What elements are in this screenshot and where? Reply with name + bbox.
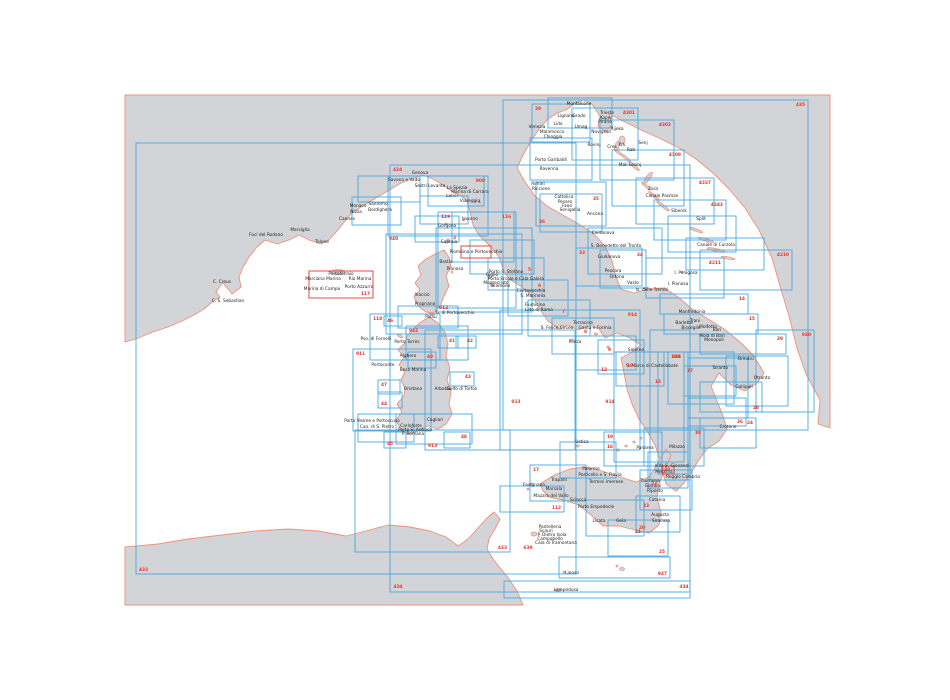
place-label: Golfo di Tortoli — [447, 386, 478, 392]
chart-number-25: 25 — [659, 549, 665, 555]
chart-number-10: 10 — [627, 363, 633, 369]
place-label: Portoconte — [371, 362, 395, 368]
chart-number-34: 34 — [637, 252, 643, 258]
place-label: Porto Empedocle — [578, 504, 615, 510]
island-blob — [619, 568, 624, 571]
chart-number-33: 33 — [579, 250, 585, 256]
chart-number-913: 913 — [511, 399, 520, 405]
chart-number-16: 16 — [607, 444, 613, 450]
place-label: Sanremo — [368, 201, 388, 207]
place-label: Chioggia — [544, 134, 563, 140]
place-label: Favignana — [523, 482, 545, 488]
place-label: Palermo — [582, 466, 600, 472]
place-label: Aiaccio — [414, 292, 430, 298]
chart-number-13: 13 — [655, 379, 661, 385]
place-label: Porto Ercole e Cala Galera — [488, 276, 544, 282]
place-label: Marsala — [546, 486, 563, 492]
place-label: Licata — [593, 518, 606, 524]
place-label: Mazara del Vallo — [533, 493, 569, 499]
chart-number-47: 47 — [381, 382, 387, 388]
place-label: Manfredonia — [679, 309, 706, 315]
place-label: Porto S. Stefano — [489, 269, 524, 275]
island-blob — [625, 445, 627, 447]
place-label: Monaco — [350, 203, 367, 209]
place-label: Lido di Roma — [525, 307, 553, 313]
chart-number-914: 914 — [605, 399, 614, 405]
place-label: Salerno — [628, 347, 645, 353]
place-label: Porto Garibaldi — [535, 157, 567, 163]
chart-number-4308: 4308 — [669, 152, 681, 158]
chart-number-139: 139 — [671, 354, 680, 360]
chart-number-28: 28 — [753, 405, 759, 411]
place-label: Rio Marina — [349, 276, 372, 282]
place-label: Trani — [689, 318, 700, 324]
place-label: Panarea — [636, 445, 654, 451]
place-label: Genova — [412, 170, 429, 176]
place-label: Ravenna — [540, 166, 559, 172]
chart-number-48: 48 — [461, 434, 467, 440]
place-label: Bastia — [439, 259, 453, 265]
chart-number-117: 117 — [361, 291, 370, 297]
chart-number-26: 26 — [737, 419, 743, 425]
chart-number-45: 45 — [387, 441, 393, 447]
chart-number-4301: 4301 — [623, 110, 635, 116]
place-label: P. Romana — [402, 431, 425, 437]
place-label: Propriano — [415, 301, 436, 307]
chart-number-912: 912 — [439, 305, 448, 311]
chart-number-913: 913 — [428, 443, 437, 449]
place-label: Giulianova — [598, 254, 621, 260]
chart-number-9: 9 — [608, 347, 611, 353]
place-label: Crotone — [720, 424, 737, 430]
chart-number-39: 39 — [535, 106, 541, 112]
chart-number-4211: 4211 — [709, 260, 721, 266]
place-label: Rovinj — [587, 142, 600, 148]
chart-number-18: 18 — [695, 430, 701, 436]
place-label: Porticello e S. Flavia — [578, 472, 622, 478]
chart-number-1: 1 — [478, 199, 481, 205]
place-label: Sestri Levante — [415, 183, 446, 189]
chart-number-46: 46 — [387, 318, 393, 324]
place-label: S. Felice Circeo — [541, 325, 574, 331]
place-label: Catania — [649, 497, 666, 503]
place-label: Monopoli — [704, 337, 723, 343]
chart-number-432: 432 — [139, 567, 148, 573]
place-label: Pescara — [605, 268, 622, 274]
island-blob — [633, 441, 635, 443]
place-label: Otranto — [754, 375, 771, 381]
chart-number-138: 138 — [661, 467, 670, 473]
place-label: Gela — [616, 518, 626, 524]
place-label: C. S. Sebastian — [212, 298, 245, 304]
place-label: Cannes — [339, 216, 356, 222]
place-label: Pianosa — [447, 266, 464, 272]
chart-number-908: 908 — [476, 178, 485, 184]
chart-number-29: 29 — [777, 336, 783, 342]
chart-index-map: C. CreusC. S. SebastianMarsigliaFoci del… — [0, 0, 950, 700]
chart-number-434: 434 — [679, 584, 688, 590]
place-label: Lido — [554, 121, 563, 127]
chart-number-3: 3 — [453, 235, 456, 241]
place-label: Gallipoli — [735, 384, 752, 390]
chart-number-914: 914 — [628, 312, 637, 318]
chart-number-116: 116 — [502, 214, 511, 220]
chart-number-112: 112 — [552, 505, 561, 511]
place-label: Cagliari — [427, 417, 443, 423]
place-label: Grado — [572, 113, 585, 119]
chart-number-12: 12 — [601, 367, 607, 373]
place-label: Trapani — [550, 477, 567, 483]
chart-number-5: 5 — [528, 267, 531, 273]
place-label: Augusta — [651, 512, 669, 518]
chart-number-27: 27 — [687, 368, 693, 374]
chart-number-35: 35 — [593, 196, 599, 202]
chart-number-434: 434 — [393, 584, 402, 590]
place-label: Porto Torres — [394, 339, 420, 345]
chart-number-41: 41 — [449, 338, 455, 344]
place-label: Piombino e Portovecchio — [450, 249, 503, 255]
place-label: Taranto — [711, 365, 728, 371]
chart-number-920: 920 — [802, 332, 811, 338]
chart-number-118: 118 — [373, 316, 382, 322]
place-label: Cres — [607, 144, 617, 150]
place-label: Sibenik — [671, 208, 687, 214]
place-label: Gorgona — [438, 223, 457, 229]
place-label: Ancona — [587, 211, 603, 217]
place-label: Porto Vesme e Portoscuso — [344, 418, 400, 424]
place-label: Reggio Calabria — [666, 474, 700, 480]
chart-number-434: 434 — [393, 167, 402, 173]
chart-number-433: 433 — [498, 545, 507, 551]
place-label: Mali Losinj — [619, 162, 641, 168]
place-label: Bordighera — [368, 207, 392, 213]
place-label: Nizza — [350, 209, 362, 215]
place-label: Marsiglia — [290, 227, 310, 233]
place-label: Cala di Tramontana — [535, 540, 577, 546]
mediterranean-chart-index-svg: C. CreusC. S. SebastianMarsigliaFoci del… — [0, 0, 950, 700]
chart-number-942: 942 — [409, 328, 418, 334]
place-label: Is. delle Tremiti — [636, 287, 669, 293]
place-label: Oristano — [404, 386, 423, 392]
chart-number-24: 24 — [747, 420, 753, 426]
place-label: Bari — [713, 327, 722, 333]
place-label: Brindisi — [738, 356, 754, 362]
place-label: Pso. di Fornelli — [361, 336, 392, 342]
place-label: Rab — [627, 147, 636, 153]
place-label: Milazzo — [669, 444, 685, 450]
island-blob — [531, 532, 537, 536]
chart-number-43: 43 — [465, 374, 471, 380]
place-label: I. Pelagosa — [674, 270, 698, 276]
place-label: Siracusa — [652, 518, 671, 524]
place-label: Canale di Curzola — [697, 242, 735, 248]
place-label: Savona e Vado — [388, 177, 420, 183]
place-label: S. Marco di Castellabate — [626, 363, 678, 369]
place-label: S. Marinella — [520, 293, 546, 299]
place-label: Riccione — [532, 186, 550, 192]
chart-number-4302: 4302 — [659, 122, 671, 128]
place-label: Umag — [575, 124, 588, 130]
place-label: Krk — [618, 142, 626, 148]
place-label: Ustica — [575, 439, 589, 445]
chart-number-14: 14 — [739, 296, 745, 302]
chart-number-2: 2 — [462, 217, 465, 223]
place-label: S. Benedetto del Tronto — [591, 243, 642, 249]
chart-number-36: 36 — [539, 219, 545, 225]
chart-number-8: 8 — [584, 329, 587, 335]
island-blob — [527, 488, 529, 490]
chart-number-435: 435 — [796, 102, 805, 108]
chart-number-6: 6 — [538, 283, 541, 289]
place-label: Sciacca — [570, 497, 587, 503]
island-blob — [577, 445, 580, 447]
place-label: Marina di Campo — [304, 286, 341, 292]
place-label: Palau — [425, 314, 437, 320]
chart-number-15: 15 — [749, 316, 755, 322]
place-label: Villa S. Giovanni — [655, 463, 690, 469]
chart-number-44: 44 — [381, 401, 387, 407]
place-label: Lampedusa — [554, 587, 579, 593]
island-blob — [594, 333, 597, 335]
chart-number-19: 19 — [607, 434, 613, 440]
chart-number-17: 17 — [533, 467, 539, 473]
place-label: Talamone — [489, 283, 511, 289]
chart-number-22: 22 — [651, 481, 657, 487]
chart-number-21: 21 — [635, 529, 641, 535]
place-label: I. Pianosa — [668, 281, 689, 287]
place-label: Rijeka — [610, 126, 623, 132]
place-label: Marina di Carrara — [451, 189, 489, 195]
place-label: Bosa Marina — [400, 367, 427, 373]
chart-number-940: 940 — [389, 236, 398, 242]
place-label: Termini Imerese — [588, 479, 624, 485]
place-label: C. Creus — [213, 279, 232, 285]
chart-number-4343: 4343 — [711, 202, 723, 208]
place-label: Split — [696, 216, 706, 222]
chart-number-7: 7 — [562, 309, 565, 315]
place-label: Vasto — [627, 280, 639, 286]
chart-number-639: 639 — [523, 545, 532, 551]
chart-number-23: 23 — [643, 503, 649, 509]
place-label: Pirano — [598, 119, 612, 125]
place-label: Foci del Rodano — [249, 232, 283, 238]
place-label: Tolone — [314, 239, 329, 245]
place-label: Linosa — [565, 570, 579, 576]
chart-number-40: 40 — [427, 354, 433, 360]
island-blob — [616, 565, 618, 567]
place-label: Ponza — [569, 339, 582, 345]
place-label: Novigrad — [591, 129, 611, 135]
chart-number-4337: 4337 — [699, 180, 711, 186]
place-label: Alghero — [400, 353, 417, 359]
chart-number-911: 911 — [356, 351, 365, 357]
place-label: Senigallia — [560, 207, 581, 213]
place-label: Bisceglie — [681, 325, 701, 331]
place-label: Can. di S. Pietro — [360, 424, 395, 430]
place-label: Canale Pasman — [645, 193, 678, 199]
place-label: Porto Azzurro — [345, 284, 374, 290]
chart-number-119: 119 — [441, 214, 450, 220]
chart-number-42: 42 — [467, 338, 473, 344]
place-label: Ortona — [610, 274, 625, 280]
chart-number-4210: 4210 — [777, 252, 789, 258]
chart-number-947: 947 — [658, 571, 667, 577]
place-label: Monfalcone — [567, 101, 592, 107]
place-label: Civitanova — [592, 230, 615, 236]
place-label: Marciana Marina — [305, 276, 341, 282]
place-label: Senj — [638, 140, 647, 146]
place-label: Zara — [648, 186, 658, 192]
